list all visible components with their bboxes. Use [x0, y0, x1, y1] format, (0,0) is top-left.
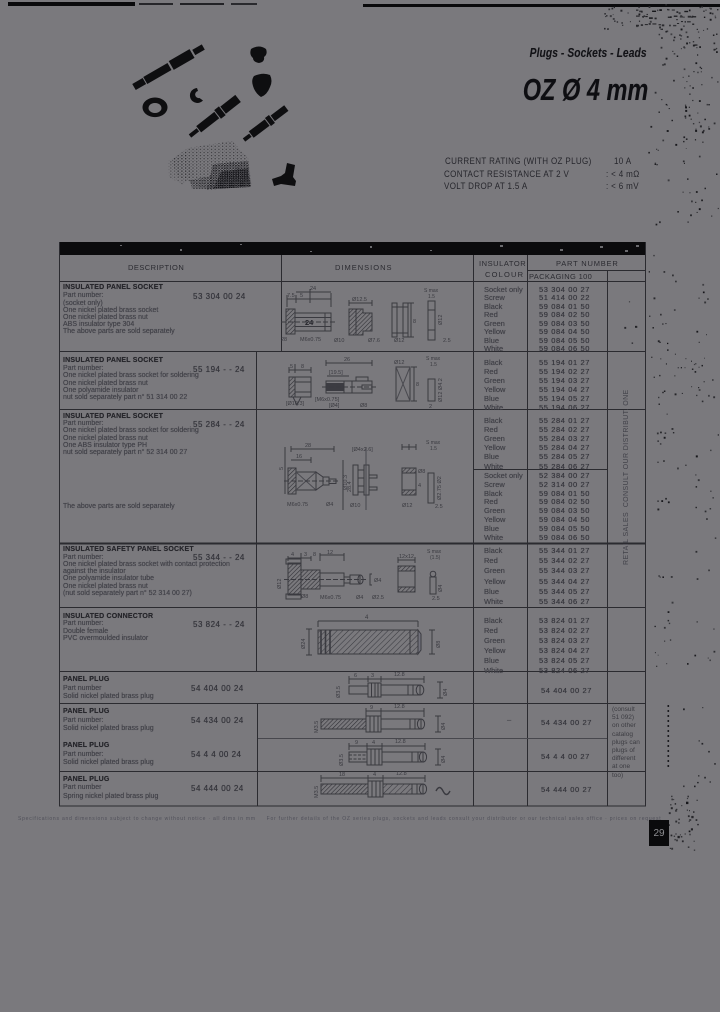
svg-text:8: 8: [416, 382, 419, 388]
svg-text:Ø10: Ø10: [350, 503, 360, 509]
svg-text:Ø24: Ø24: [301, 639, 307, 649]
svg-text:[Ø4x2.6]: [Ø4x2.6]: [352, 447, 373, 453]
svg-text:2.5: 2.5: [435, 504, 443, 510]
svg-text:Ø12: Ø12: [277, 579, 283, 589]
svg-text:3: 3: [304, 552, 307, 558]
svg-text:Ø7.6: Ø7.6: [368, 338, 380, 344]
svg-text:2.5: 2.5: [443, 338, 451, 344]
svg-text:4: 4: [418, 483, 421, 489]
svg-text:4: 4: [365, 615, 369, 621]
svg-text:1.5: 1.5: [430, 362, 437, 368]
svg-text:Ø4: Ø4: [443, 689, 449, 696]
svg-text:Ø8: Ø8: [418, 469, 425, 475]
svg-text:M3.5: M3.5: [314, 721, 320, 733]
svg-text:5: 5: [290, 364, 293, 370]
svg-text:9: 9: [370, 705, 373, 711]
svg-text:M6x0.75: M6x0.75: [287, 502, 308, 508]
svg-text:18: 18: [339, 772, 345, 778]
svg-text:24: 24: [310, 286, 316, 292]
svg-text:M3.5: M3.5: [314, 786, 320, 798]
svg-text:Ø12.5: Ø12.5: [352, 297, 367, 303]
svg-text:M6x0.75: M6x0.75: [320, 595, 341, 601]
svg-text:(1.5): (1.5): [430, 555, 441, 561]
svg-text:16: 16: [296, 454, 302, 460]
svg-text:9: 9: [355, 740, 358, 746]
svg-text:Ø8: Ø8: [436, 641, 442, 648]
svg-text:[19.5]: [19.5]: [329, 370, 343, 376]
svg-text:28: 28: [305, 443, 311, 449]
svg-text:12.8: 12.8: [394, 672, 405, 678]
svg-text:3: 3: [371, 673, 374, 679]
svg-text:Ø4: Ø4: [326, 502, 333, 508]
svg-text:12: 12: [327, 550, 333, 556]
svg-text:Ø2.5: Ø2.5: [372, 595, 384, 601]
svg-text:Ø12: Ø12: [438, 315, 444, 325]
svg-text:4: 4: [373, 772, 376, 778]
svg-text:28: 28: [281, 337, 287, 343]
svg-text:12.8: 12.8: [396, 771, 407, 777]
svg-text:[Ø4]: [Ø4]: [329, 403, 340, 409]
svg-text:Ø4: Ø4: [374, 578, 381, 584]
svg-text:4: 4: [372, 740, 375, 746]
svg-text:Ø8: Ø8: [360, 403, 367, 409]
svg-text:1.5: 1.5: [430, 446, 437, 452]
svg-text:Ø12: Ø12: [402, 503, 412, 509]
svg-text:6: 6: [354, 673, 357, 679]
svg-text:26: 26: [344, 357, 350, 363]
svg-text:Ø12 Ø4.2: Ø12 Ø4.2: [438, 378, 444, 402]
svg-text:5: 5: [300, 293, 303, 299]
svg-text:12.8: 12.8: [394, 704, 405, 710]
svg-text:28.4: 28.4: [347, 481, 353, 492]
svg-text:12.8: 12.8: [395, 739, 406, 745]
svg-text:Ø2.75 Ø2: Ø2.75 Ø2: [437, 476, 443, 500]
svg-text:8: 8: [413, 319, 416, 325]
svg-text:7.5: 7.5: [287, 293, 295, 299]
svg-text:5: 5: [279, 467, 285, 470]
svg-text:2.5: 2.5: [432, 596, 440, 602]
svg-text:Ø4: Ø4: [438, 585, 444, 592]
svg-text:4: 4: [291, 552, 294, 558]
svg-text:2: 2: [429, 404, 432, 410]
svg-text:Ø10: Ø10: [334, 338, 344, 344]
svg-text:8: 8: [313, 552, 316, 558]
svg-text:Ø8: Ø8: [301, 594, 308, 600]
svg-text:Ø3.5: Ø3.5: [336, 686, 342, 698]
svg-text:Ø3.5: Ø3.5: [339, 754, 345, 766]
svg-text:Ø4: Ø4: [441, 756, 447, 763]
svg-text:1.5: 1.5: [428, 294, 435, 300]
svg-text:Ø4: Ø4: [441, 723, 447, 730]
svg-text:M6x0.75: M6x0.75: [300, 337, 321, 343]
svg-text:Ø4: Ø4: [356, 595, 363, 601]
svg-text:Ø12: Ø12: [394, 360, 404, 366]
svg-text:[Ø10.3]: [Ø10.3]: [286, 401, 305, 407]
svg-text:Ø12: Ø12: [394, 338, 404, 344]
svg-text:8: 8: [301, 364, 304, 370]
svg-text:12x12: 12x12: [399, 554, 414, 560]
